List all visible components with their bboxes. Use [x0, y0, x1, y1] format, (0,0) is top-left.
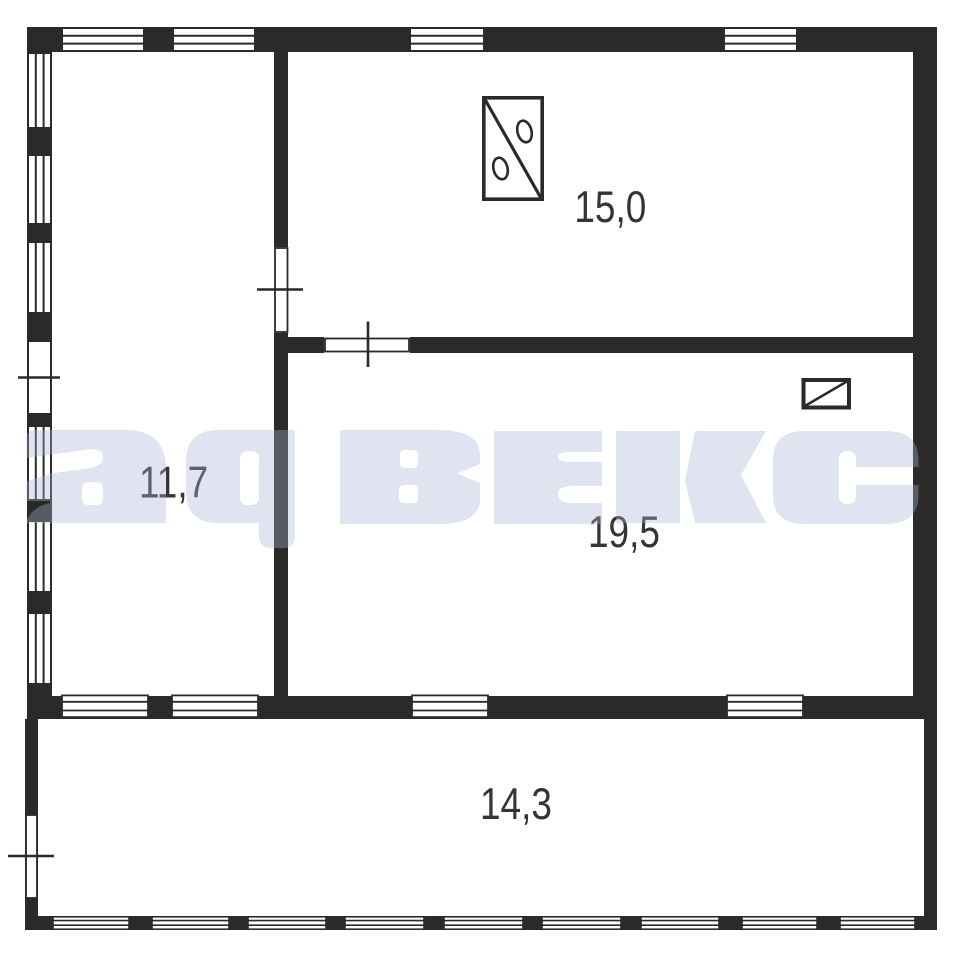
svg-text:14,3: 14,3	[480, 779, 552, 829]
svg-text:15,0: 15,0	[574, 182, 646, 232]
